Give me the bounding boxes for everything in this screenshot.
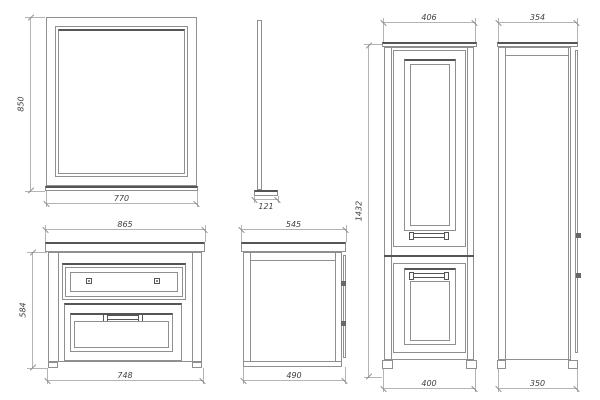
dimension-mirror-depth: 121 <box>254 199 278 200</box>
dimension-label-mirror-width: 770 <box>114 194 129 203</box>
dimension-tall-cabinet-bottom-depth: 350 <box>498 388 577 389</box>
vanity-side-stile-line <box>335 252 336 362</box>
vanity-stile-line <box>192 252 193 362</box>
dimension-vanity-height: 584 <box>32 252 33 368</box>
dimension-mirror-width: 770 <box>46 203 197 204</box>
vanity-foot <box>192 362 202 368</box>
upper-door-handle <box>411 233 447 238</box>
vanity-foot <box>48 362 58 368</box>
lower-door-handle <box>411 273 447 278</box>
vanity-countertop <box>45 242 205 252</box>
dimension-label-tall-top-depth: 354 <box>530 13 545 22</box>
extension-line <box>45 225 46 242</box>
cabinet-side-foot <box>568 360 578 369</box>
dimension-label-vanity-top-width: 865 <box>117 220 132 229</box>
vanity-side-top-rail <box>250 260 335 261</box>
drawer-knob <box>86 278 92 284</box>
handle-side-profile <box>576 273 581 278</box>
lower-door-panel-inner <box>410 281 450 341</box>
extension-line <box>346 225 347 242</box>
extension-line <box>577 18 578 42</box>
cabinet-side-foot <box>497 360 506 369</box>
cabinet-side-stile-line <box>568 47 569 360</box>
vanity-side-stile-line <box>250 252 251 362</box>
dimension-label-vanity-bottom-depth: 490 <box>286 371 301 380</box>
dimension-mirror-height: 850 <box>30 17 31 191</box>
dimension-label-vanity-bottom-width: 748 <box>117 371 132 380</box>
vanity-side-countertop <box>241 242 346 252</box>
dimension-tall-cabinet-height: 1432 <box>368 45 369 377</box>
mirror-side-ledge <box>254 190 278 196</box>
mirror-glass-edge <box>58 29 185 174</box>
dimension-label-mirror-depth: 121 <box>258 202 273 211</box>
dimension-label-mirror-height: 850 <box>17 96 26 111</box>
dimension-label-vanity-height: 584 <box>19 302 28 317</box>
cabinet-mid-divider <box>384 255 474 257</box>
vanity-side-plinth <box>243 361 342 367</box>
dimension-label-tall-bottom-depth: 350 <box>530 379 545 388</box>
mirror-shelf-ledge <box>45 186 198 191</box>
technical-drawing-canvas: 850 770 121 <box>0 0 600 400</box>
dimension-label-tall-height: 1432 <box>355 201 364 221</box>
mirror-side-profile <box>257 20 262 190</box>
cabinet-foot <box>382 360 393 369</box>
cabinet-side-top-rail <box>505 55 568 56</box>
extension-line <box>475 18 476 42</box>
cabinet-stile-line <box>391 47 392 360</box>
vanity-door-edge-profile <box>343 255 346 358</box>
upper-door-panel-inner <box>410 64 450 226</box>
cabinet-side-body <box>498 47 571 360</box>
dimension-vanity-bottom-width: 748 <box>47 380 203 381</box>
dimension-label-tall-top-width: 406 <box>421 13 436 22</box>
drawer-knob <box>154 278 160 284</box>
vanity-lower-handle <box>105 315 141 320</box>
vanity-lower-panel-inner <box>74 321 169 348</box>
cabinet-foot <box>466 360 477 369</box>
extension-line <box>241 225 242 242</box>
cabinet-side-stile-line <box>505 47 506 360</box>
dimension-label-vanity-top-depth: 545 <box>286 220 301 229</box>
vanity-stile-line <box>58 252 59 362</box>
handle-side-profile <box>341 321 346 326</box>
dimension-tall-cabinet-top-depth: 354 <box>498 22 577 23</box>
dimension-label-tall-bottom-width: 400 <box>421 379 436 388</box>
door-front-edge-profile <box>575 50 578 353</box>
dimension-vanity-top-depth: 545 <box>241 229 346 230</box>
extension-line <box>205 225 206 242</box>
handle-side-profile <box>576 233 581 238</box>
cabinet-stile-line <box>467 47 468 360</box>
dimension-vanity-bottom-depth: 490 <box>243 380 345 381</box>
dimension-vanity-top-width: 865 <box>45 229 205 230</box>
extension-line <box>364 44 382 45</box>
dimension-tall-cabinet-top-width: 406 <box>383 22 475 23</box>
knob-side-profile <box>341 281 346 286</box>
dimension-tall-cabinet-bottom-width: 400 <box>383 388 475 389</box>
vanity-side-body <box>243 252 342 362</box>
